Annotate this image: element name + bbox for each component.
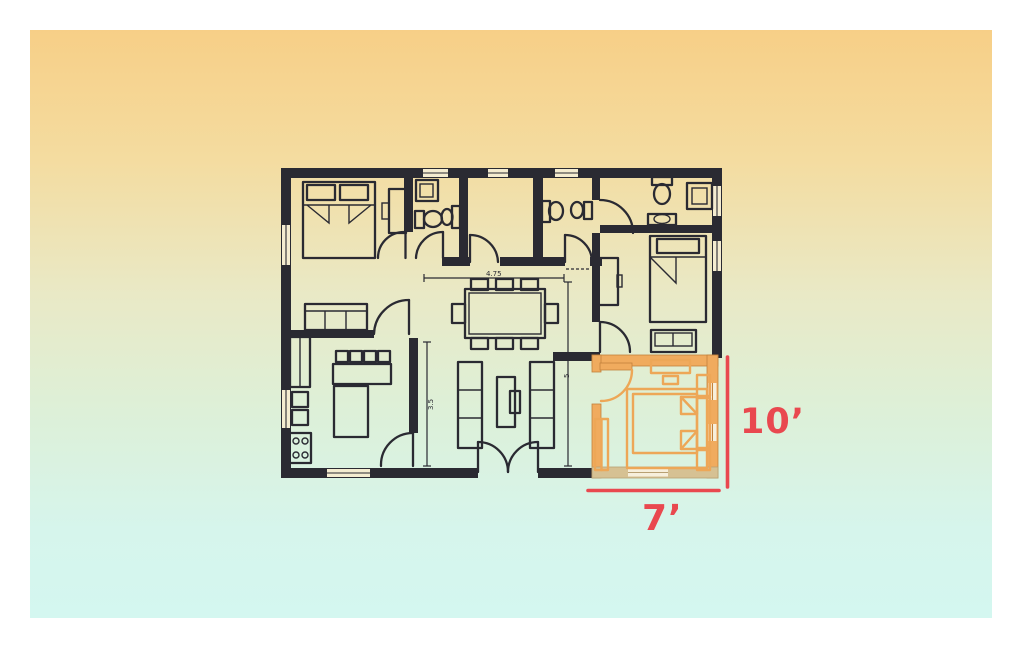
shower-cabinet-icon [687, 183, 712, 209]
bathroom-3-fixtures [648, 177, 712, 225]
coffee-table-icon [497, 377, 520, 427]
toilet-icon [415, 211, 442, 228]
width-label: 7’ [642, 498, 683, 539]
kitchen-height-text: 3.5 [427, 399, 435, 410]
dining-area-furniture [452, 279, 558, 349]
dimension-marks: 4.75 3.5 5 [423, 270, 572, 466]
center-height-text: 5 [563, 374, 571, 378]
double-bed-icon [303, 182, 375, 258]
desk-icon [382, 189, 406, 233]
kitchen-furniture [289, 337, 391, 463]
sink-icon [442, 206, 461, 228]
bedroom-2-furniture [598, 236, 706, 352]
bathroom-2-fixtures [542, 201, 592, 222]
sofa-icon [305, 304, 367, 330]
living-area-furniture [458, 362, 554, 448]
bathroom-1-fixtures [415, 180, 460, 228]
sink-icon [648, 214, 676, 225]
highlighted-bed-icon [627, 375, 710, 470]
dining-table-icon [452, 279, 558, 349]
kitchen-bed-icon [333, 351, 391, 437]
kitchen-sink-icon [292, 392, 308, 425]
single-bed-icon [650, 236, 706, 322]
hallway-width-text: 4.75 [486, 270, 502, 278]
sofa-right-icon [530, 362, 554, 448]
toilet-icon [571, 202, 592, 219]
cabinet-icon [416, 180, 438, 201]
floor-plan-image: 4.75 3.5 5 [0, 0, 1024, 650]
loveseat-icon [651, 330, 696, 352]
sofa-left-icon [458, 362, 482, 448]
stove-icon [289, 433, 311, 463]
sink-icon [542, 201, 563, 222]
fridge-icon [290, 337, 310, 387]
bedroom-1-furniture [303, 182, 406, 330]
toilet-icon [652, 177, 672, 204]
height-label: 10’ [740, 402, 805, 442]
highlighted-room [592, 355, 718, 478]
